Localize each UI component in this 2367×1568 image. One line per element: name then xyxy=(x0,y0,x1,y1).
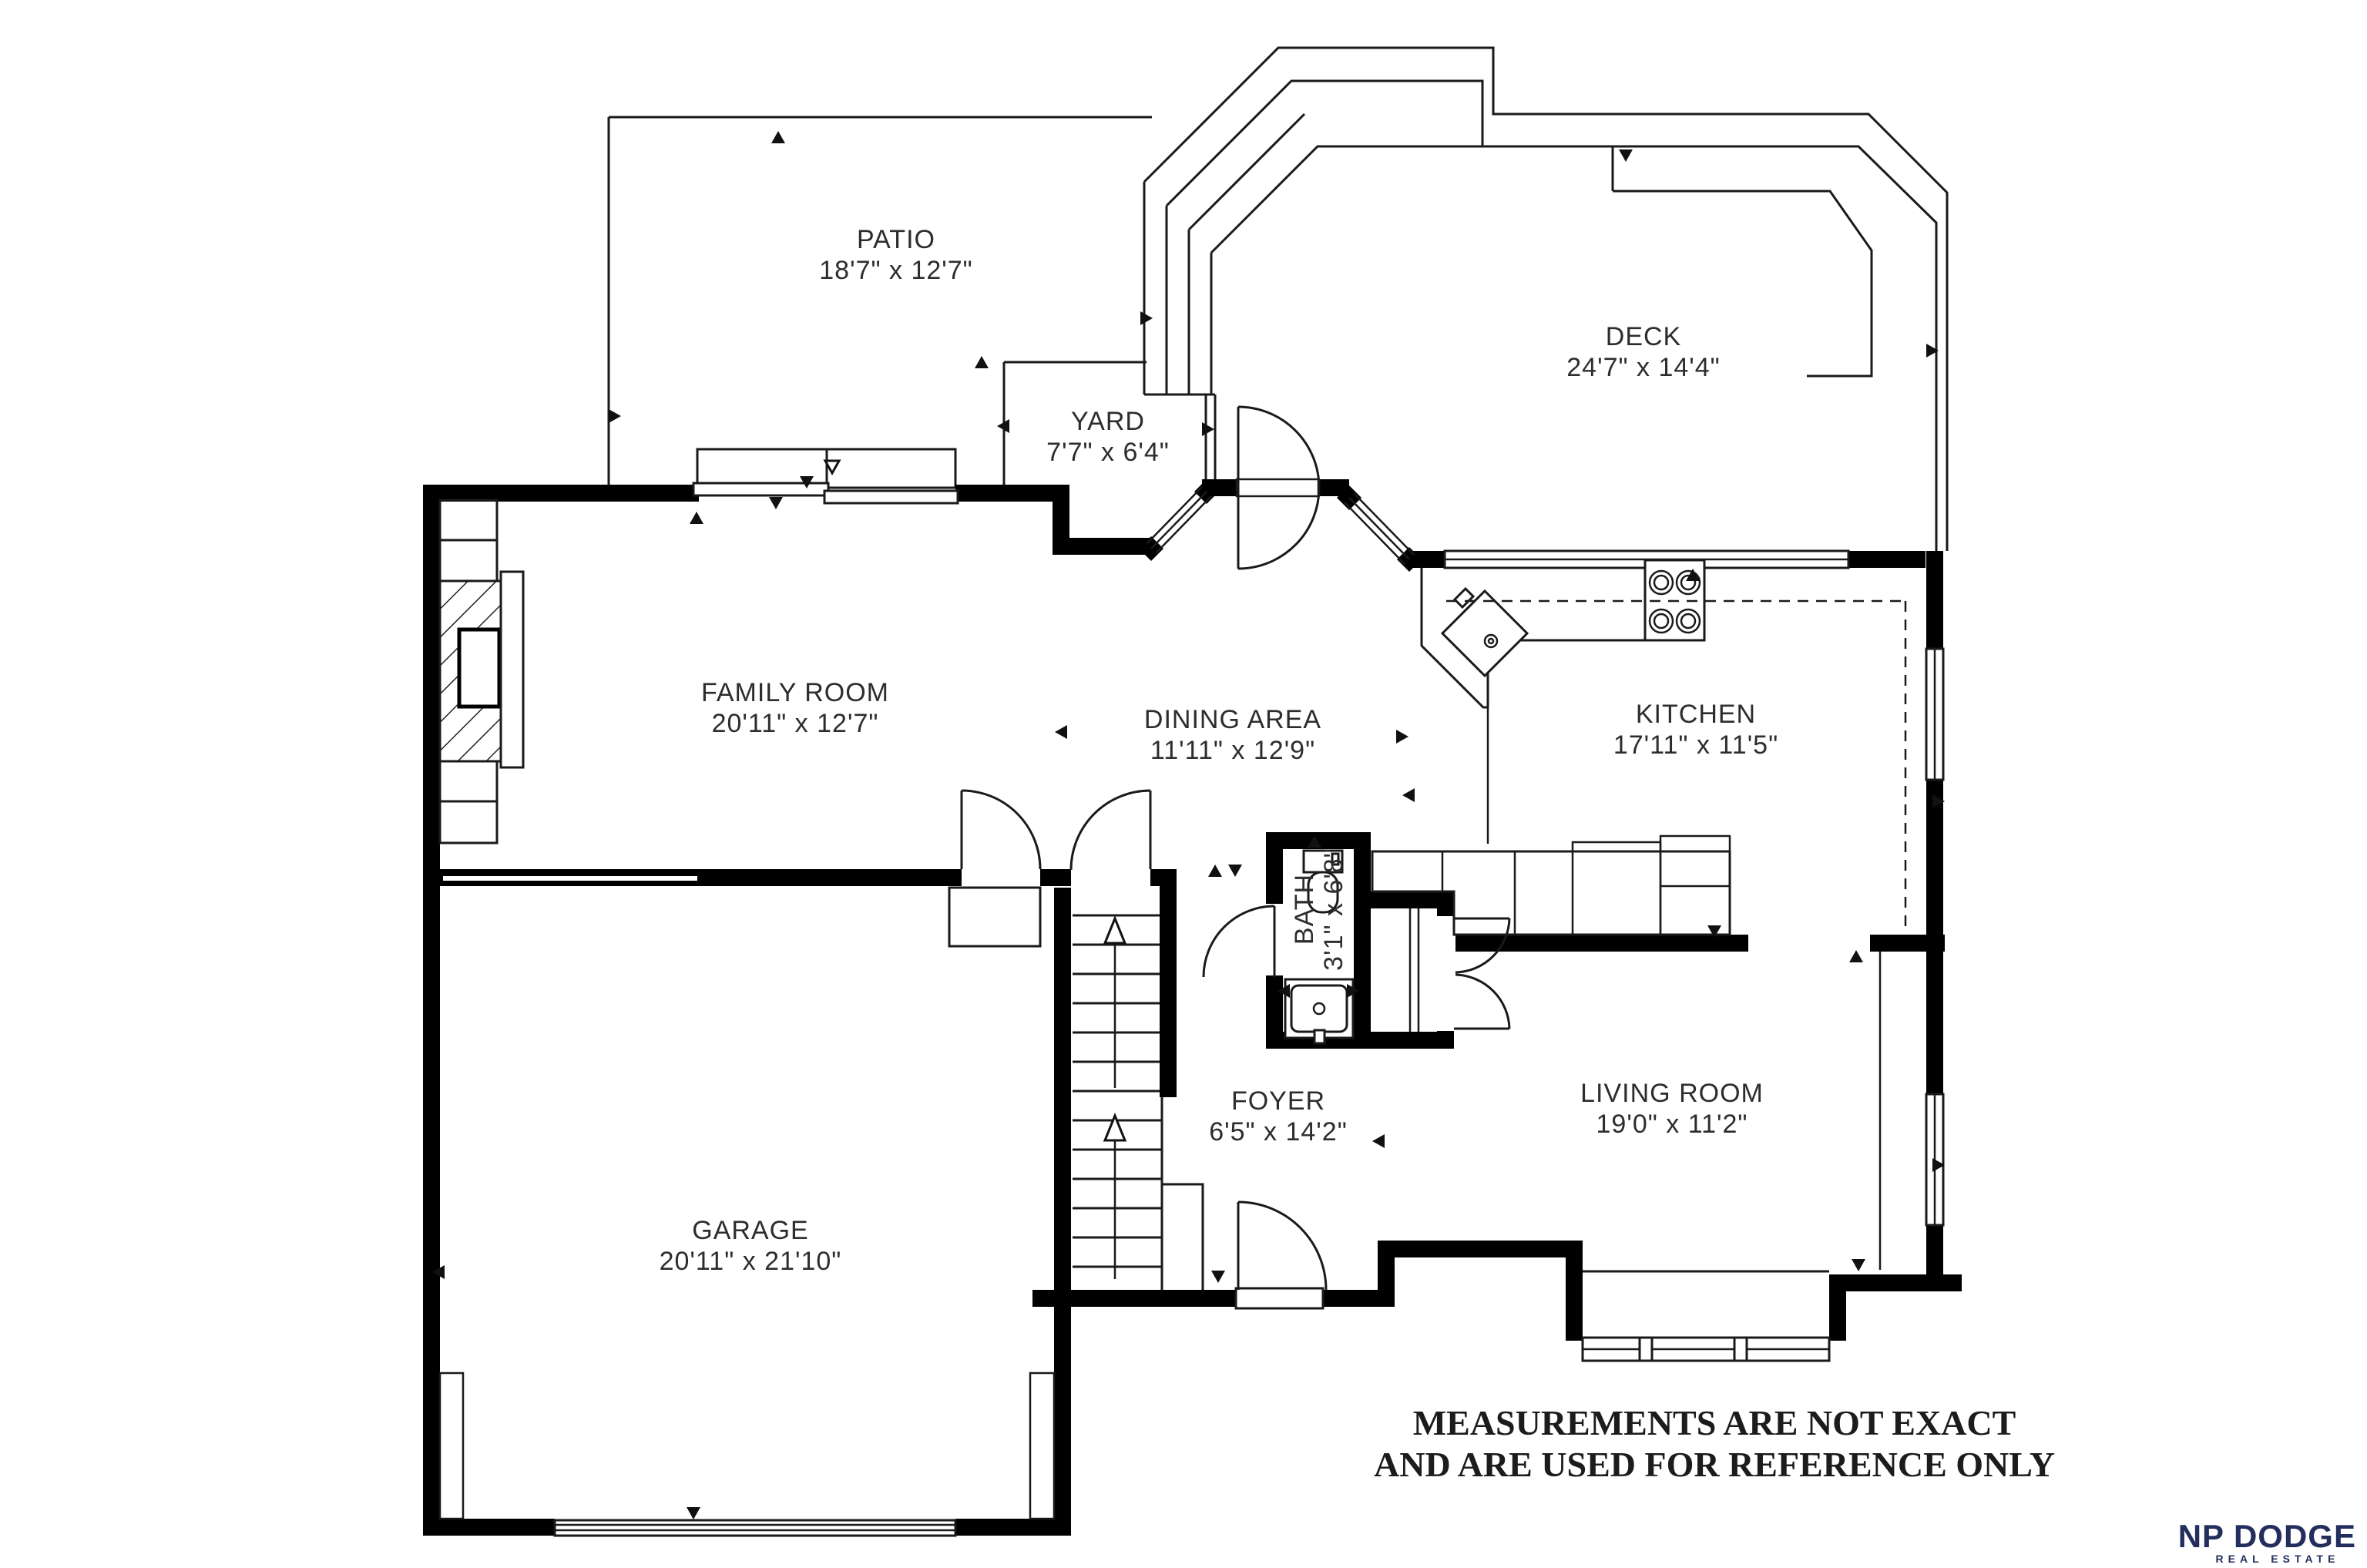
walls xyxy=(423,479,1962,1536)
dining-area-name: DINING AREA xyxy=(1144,705,1321,734)
np-dodge-logo: NP DODGE xyxy=(2178,1518,2356,1554)
closet-interior xyxy=(1410,908,1419,1032)
kitchen-dims: 17'11" x 11'5" xyxy=(1613,730,1778,760)
bath-name: BATH xyxy=(1290,874,1319,945)
living-room-dims: 19'0" x 11'2" xyxy=(1596,1110,1748,1139)
patio-name: PATIO xyxy=(857,225,935,254)
fireplace-icon xyxy=(440,500,523,843)
patio-dims: 18'7" x 12'7" xyxy=(819,256,972,285)
yard-dims: 7'7" x 6'4" xyxy=(1046,438,1170,467)
diagonal-window-icon xyxy=(1147,487,1414,564)
family-room-dims: 20'11" x 12'7" xyxy=(712,709,879,738)
front-door-icon xyxy=(1236,1202,1326,1308)
garage-name: GARAGE xyxy=(692,1216,808,1245)
stairs xyxy=(1073,915,1203,1290)
garage-door-icon xyxy=(555,1520,955,1536)
floor-plan-drawing: PATIO 18'7" x 12'7" DECK 24'7" x 14'4" Y… xyxy=(0,0,2367,1568)
np-dodge-tagline: REAL ESTATE xyxy=(2216,1553,2340,1565)
family-room-name: FAMILY ROOM xyxy=(701,678,889,707)
family-garage-doors-icon xyxy=(949,791,1150,946)
closet-doors-icon xyxy=(1435,916,1509,1031)
living-room-name: LIVING ROOM xyxy=(1580,1079,1764,1108)
disclaimer-line-2: AND ARE USED FOR REFERENCE ONLY xyxy=(1374,1445,2055,1484)
bath-sink-icon xyxy=(1285,979,1353,1043)
foyer-dims: 6'5" x 14'2" xyxy=(1209,1117,1348,1147)
room-label-foyer: FOYER 6'5" x 14'2" xyxy=(1209,1086,1348,1147)
room-label-dining-area: DINING AREA 11'11" x 12'9" xyxy=(1144,705,1321,765)
foyer-name: FOYER xyxy=(1231,1086,1325,1116)
room-label-deck: DECK 24'7" x 14'4" xyxy=(1566,322,1720,382)
dining-door-icon xyxy=(1237,407,1319,569)
brand-logo: NP DODGE REAL ESTATE xyxy=(2178,1518,2356,1565)
room-label-yard: YARD 7'7" x 6'4" xyxy=(1046,407,1170,467)
room-labels: PATIO 18'7" x 12'7" DECK 24'7" x 14'4" Y… xyxy=(660,225,1779,1276)
deck-name: DECK xyxy=(1606,322,1681,351)
room-label-garage: GARAGE 20'11" x 21'10" xyxy=(660,1216,842,1276)
kitchen-name: KITCHEN xyxy=(1636,700,1756,729)
bath-door-icon xyxy=(1204,904,1284,977)
room-label-living-room: LIVING ROOM 19'0" x 11'2" xyxy=(1580,1079,1764,1139)
room-label-family-room: FAMILY ROOM 20'11" x 12'7" xyxy=(701,678,889,738)
kitchen-cabinets xyxy=(1372,836,1730,935)
yard-name: YARD xyxy=(1071,407,1145,436)
room-label-bath: BATH 3'1" x 6'8" xyxy=(1290,848,1348,971)
dining-area-dims: 11'11" x 12'9" xyxy=(1150,736,1315,765)
disclaimer: MEASUREMENTS ARE NOT EXACT AND ARE USED … xyxy=(1374,1403,2055,1484)
bay-window-icon xyxy=(1583,1271,1829,1361)
room-label-patio: PATIO 18'7" x 12'7" xyxy=(819,225,972,285)
garage-interior xyxy=(440,1373,1054,1519)
deck-outline xyxy=(1144,48,1947,551)
floor-plan: PATIO 18'7" x 12'7" DECK 24'7" x 14'4" Y… xyxy=(0,0,2367,1568)
room-label-kitchen: KITCHEN 17'11" x 11'5" xyxy=(1613,700,1778,760)
bath-dims: 3'1" x 6'8" xyxy=(1319,848,1348,971)
garage-dims: 20'11" x 21'10" xyxy=(660,1247,842,1276)
disclaimer-line-1: MEASUREMENTS ARE NOT EXACT xyxy=(1413,1403,2016,1442)
deck-dims: 24'7" x 14'4" xyxy=(1566,353,1720,382)
sliding-door-icon xyxy=(693,483,958,503)
